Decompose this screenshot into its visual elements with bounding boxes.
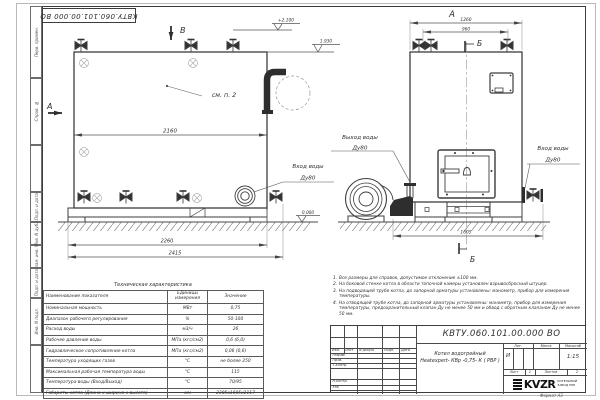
param-name: Габариты котла (Длина х ширина х высота) <box>44 388 168 399</box>
param-units: МПа (кгс/см2) <box>168 335 208 346</box>
section-a-label: А <box>46 102 52 111</box>
col-doc: N докум. <box>359 349 375 352</box>
title-block: КВТУ.060.101.00.000 ВО Котел водогрейный… <box>330 325 586 393</box>
param-name: Максимальная рабочая температура воды <box>44 367 168 378</box>
dim-1260-label: 1260 <box>460 17 471 23</box>
drawing-sheet: Перв. примен. Справ. № Подп. и дата Инв.… <box>0 0 600 400</box>
param-name: Гидравлическое сопротивление котла <box>44 346 168 357</box>
logo-text: KVZR <box>524 378 555 391</box>
tech-col-units: Единицы измерения <box>168 291 208 304</box>
table-row: Рабочее давление водыМПа (кгс/см2)0,6 (6… <box>44 335 264 346</box>
title-block-doc-number: КВТУ.060.101.00.000 ВО <box>416 326 587 343</box>
side-base-frame <box>68 208 267 222</box>
param-units: мм <box>168 388 208 399</box>
scale-label: Масштаб <box>559 345 587 348</box>
param-value: 0,06 (0,6) <box>208 346 264 357</box>
param-name: Номинальная мощность <box>44 304 168 315</box>
param-units: % <box>168 314 208 325</box>
note-text: На подводящей трубе котла, до запорной а… <box>339 289 583 301</box>
elev-2100-label: +2.100 <box>278 18 294 24</box>
note-text: На боковой стенке котла в области топочн… <box>339 282 548 288</box>
note-item: 2.На боковой стенке котла в области топо… <box>331 282 583 288</box>
notes-list: 1.Все размеры для справок, допустимое от… <box>331 276 583 319</box>
front-outlet-label-1: Выход воды <box>342 135 378 141</box>
table-row: Температура уходящих газов°Сне более 250 <box>44 356 264 367</box>
param-value: 0,75 <box>208 304 264 315</box>
manufacturer-logo: KVZR КОТЕЛЬНЫЙ ЗАВОД РЭП <box>503 375 587 393</box>
section-b-label: В <box>180 26 186 35</box>
row-utv: Утв. <box>333 386 340 389</box>
elev-0000-label: 0.000 <box>302 210 315 216</box>
logo-mark-icon <box>513 379 522 390</box>
product-name-line2: Heatexpert- КВр -0,75- К ( РВР ) <box>420 358 500 365</box>
param-name: Расход воды <box>44 325 168 336</box>
param-units: м3/ч <box>168 325 208 336</box>
param-value: 115 <box>208 367 264 378</box>
side-outlet-elbow <box>262 72 310 114</box>
sling-marks <box>80 59 202 203</box>
table-row: Максимальная рабочая температура воды°С1… <box>44 367 264 378</box>
tech-col-name: Наименование показателя <box>44 291 168 304</box>
note-item: 4.На отводящей трубе котла, до запорной … <box>331 301 583 318</box>
product-name-line1: Котел водогрейный <box>434 351 485 358</box>
param-units: °С <box>168 367 208 378</box>
note-number: 3. <box>331 289 339 301</box>
tech-col-value: Значение <box>208 291 264 304</box>
param-value: 26 <box>208 325 264 336</box>
col-izm: Изм. <box>332 349 340 352</box>
param-value: 70/95 <box>208 378 264 389</box>
dim-1605-label: 1605 <box>460 230 471 236</box>
front-boiler-body <box>410 52 522 202</box>
param-units: МПа (кгс/см2) <box>168 346 208 357</box>
ground-hatch-side <box>58 223 310 232</box>
param-name: Рабочее давление воды <box>44 335 168 346</box>
sheet-label: Лист <box>503 371 525 374</box>
vent-hatch <box>490 73 513 93</box>
product-name: Котел водогрейный Heatexpert- КВр -0,75-… <box>417 344 503 372</box>
dim-2415-label: 2415 <box>169 251 182 257</box>
logo-subtitle: КОТЕЛЬНЫЙ ЗАВОД РЭП <box>557 380 577 387</box>
front-inlet-leader <box>525 164 580 188</box>
param-units: °С <box>168 356 208 367</box>
row-prov: Пров. <box>333 359 343 362</box>
col-data: Дата <box>401 349 410 352</box>
blower-fan <box>346 179 394 223</box>
section-b-top-label: Б <box>477 39 482 48</box>
see-note-label: см. п. 2 <box>212 92 236 99</box>
note-number: 2. <box>331 282 339 288</box>
table-row: Диапазон рабочего регулирования%50-100 <box>44 314 264 325</box>
ground-hatch-front <box>340 223 546 232</box>
note-number: 4. <box>331 301 339 318</box>
front-top-valves <box>413 40 513 53</box>
front-view-label: А <box>448 10 455 20</box>
param-name: Диапазон рабочего регулирования <box>44 314 168 325</box>
side-top-valves <box>75 40 239 53</box>
front-outlet-label-2: Ду80 <box>352 146 368 152</box>
dim-2160-label: 2160 <box>163 129 177 135</box>
elevation-marks-side <box>233 24 340 223</box>
param-value: 50-100 <box>208 314 264 325</box>
param-name: Температура воды (Вход/Выход) <box>44 378 168 389</box>
sheets-num: 2 <box>567 371 587 374</box>
side-inlet-label-1: Вход воды <box>292 164 324 170</box>
table-row: Гидравлическое сопротивление котлаМПа (к… <box>44 346 264 357</box>
front-base <box>415 202 522 222</box>
note-number: 1. <box>331 276 339 282</box>
col-list: Лист <box>345 349 354 352</box>
param-value: 2385х1605х2117 <box>208 388 264 399</box>
front-inlet-label-1: Вход воды <box>537 146 569 152</box>
side-inlet-flange <box>235 186 255 206</box>
lit-value: И <box>503 354 513 360</box>
mass-label: Масса <box>533 345 559 348</box>
door-latch <box>464 168 471 176</box>
front-outlet-assembly <box>390 183 416 216</box>
dim-2260-label: 2260 <box>161 239 174 245</box>
param-value: 0,6 (6,0) <box>208 335 264 346</box>
note-item: 3.На подводящей трубе котла, до запорной… <box>331 289 583 301</box>
see-note-leader <box>166 85 202 96</box>
note-text: Все размеры для справок, допустимое откл… <box>339 276 478 282</box>
param-units: °С <box>168 378 208 389</box>
param-name: Температура уходящих газов <box>44 356 168 367</box>
table-row: Габариты котла (Длина х ширина х высота)… <box>44 388 264 399</box>
param-units: МВт <box>168 304 208 315</box>
tech-table-header-row: Наименование показателя Единицы измерени… <box>44 291 264 304</box>
lit-label: Лит. <box>503 345 533 348</box>
note-text: На отводящей трубе котла, до запорной ар… <box>339 301 583 318</box>
sheets-label: Листов <box>535 371 567 374</box>
row-razrab: Разраб. <box>333 354 346 357</box>
tech-table-title: Техническая характеристика <box>43 282 263 288</box>
logo-sub-line2: ЗАВОД РЭП <box>557 384 577 388</box>
table-row: Номинальная мощностьМВт0,75 <box>44 304 264 315</box>
dim-960-label: 960 <box>462 27 470 32</box>
table-row: Температура воды (Вход/Выход)°С70/95 <box>44 378 264 389</box>
side-inlet-label-2: Ду80 <box>300 176 316 182</box>
side-view <box>48 24 340 261</box>
sheet-num: 1 <box>525 371 535 374</box>
format-label: Формат А3 <box>540 393 563 398</box>
tech-table: Наименование показателя Единицы измерени… <box>43 290 264 399</box>
side-inlet-leader <box>254 182 334 192</box>
scale-value: 1:15 <box>559 355 587 361</box>
front-inlet-assembly <box>522 187 543 203</box>
note-item: 1.Все размеры для справок, допустимое от… <box>331 276 583 282</box>
front-inlet-label-2: Ду80 <box>545 158 561 164</box>
table-row: Расход водым3/ч26 <box>44 325 264 336</box>
elev-1930-label: 1.930 <box>320 39 333 45</box>
section-b-bottom-label: Б <box>470 255 475 264</box>
row-nkontr: Н.контр. <box>333 380 348 383</box>
col-podp: Подп. <box>384 349 394 352</box>
param-value: не более 250 <box>208 356 264 367</box>
row-tkontr: Т.контр. <box>333 364 348 367</box>
